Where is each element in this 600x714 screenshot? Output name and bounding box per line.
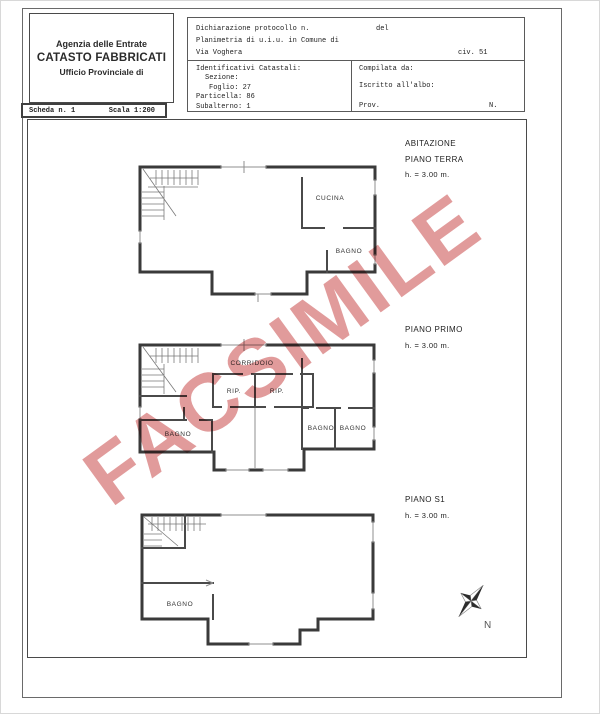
height-s1: h. = 3.00 m. [405,508,450,524]
height-primo: h. = 3.00 m. [405,338,463,354]
title-piano-terra: ABITAZIONE PIANO TERRA h. = 3.00 m. [405,136,464,183]
piano-s1-label: PIANO S1 [405,492,450,508]
floor-plan-piano-terra: CUCINA BAGNO [140,161,375,302]
height-terra: h. = 3.00 m. [405,167,464,183]
room-label-corridoio: CORRIDOIO [231,360,274,367]
room-label-cucina: CUCINA [316,195,345,202]
floor-plan-piano-primo: CORRIDOIO RIP. RIP. BAGNO BAGNO BAGNO [140,339,374,470]
piano-primo-label: PIANO PRIMO [405,322,463,338]
title-piano-s1: PIANO S1 h. = 3.00 m. [405,492,450,523]
compass-rose-icon: N [448,577,493,631]
floor-plan-piano-s1: BAGNO [142,515,373,644]
room-label-bagno-s1: BAGNO [167,601,193,608]
floor-plans-drawing: CUCINA BAGNO CORRIDOIO RIP. RIP. BAGNO B… [0,0,600,714]
room-label-bagno-terra: BAGNO [336,248,362,255]
room-label-bagno-right: BAGNO [340,425,366,432]
abitazione-label: ABITAZIONE [405,136,464,152]
stairs-icon [144,517,206,546]
room-label-bagno-mid: BAGNO [308,425,334,432]
north-label: N [484,620,491,631]
stairs-icon [142,169,198,220]
piano-terra-label: PIANO TERRA [405,152,464,168]
room-label-rip-2: RIP. [270,388,284,395]
cadastral-sheet: Agenzia delle Entrate CATASTO FABBRICATI… [0,0,600,714]
title-piano-primo: PIANO PRIMO h. = 3.00 m. [405,322,463,353]
stairs-icon [142,347,198,394]
room-label-rip-1: RIP. [227,388,241,395]
room-label-bagno-left: BAGNO [165,431,191,438]
